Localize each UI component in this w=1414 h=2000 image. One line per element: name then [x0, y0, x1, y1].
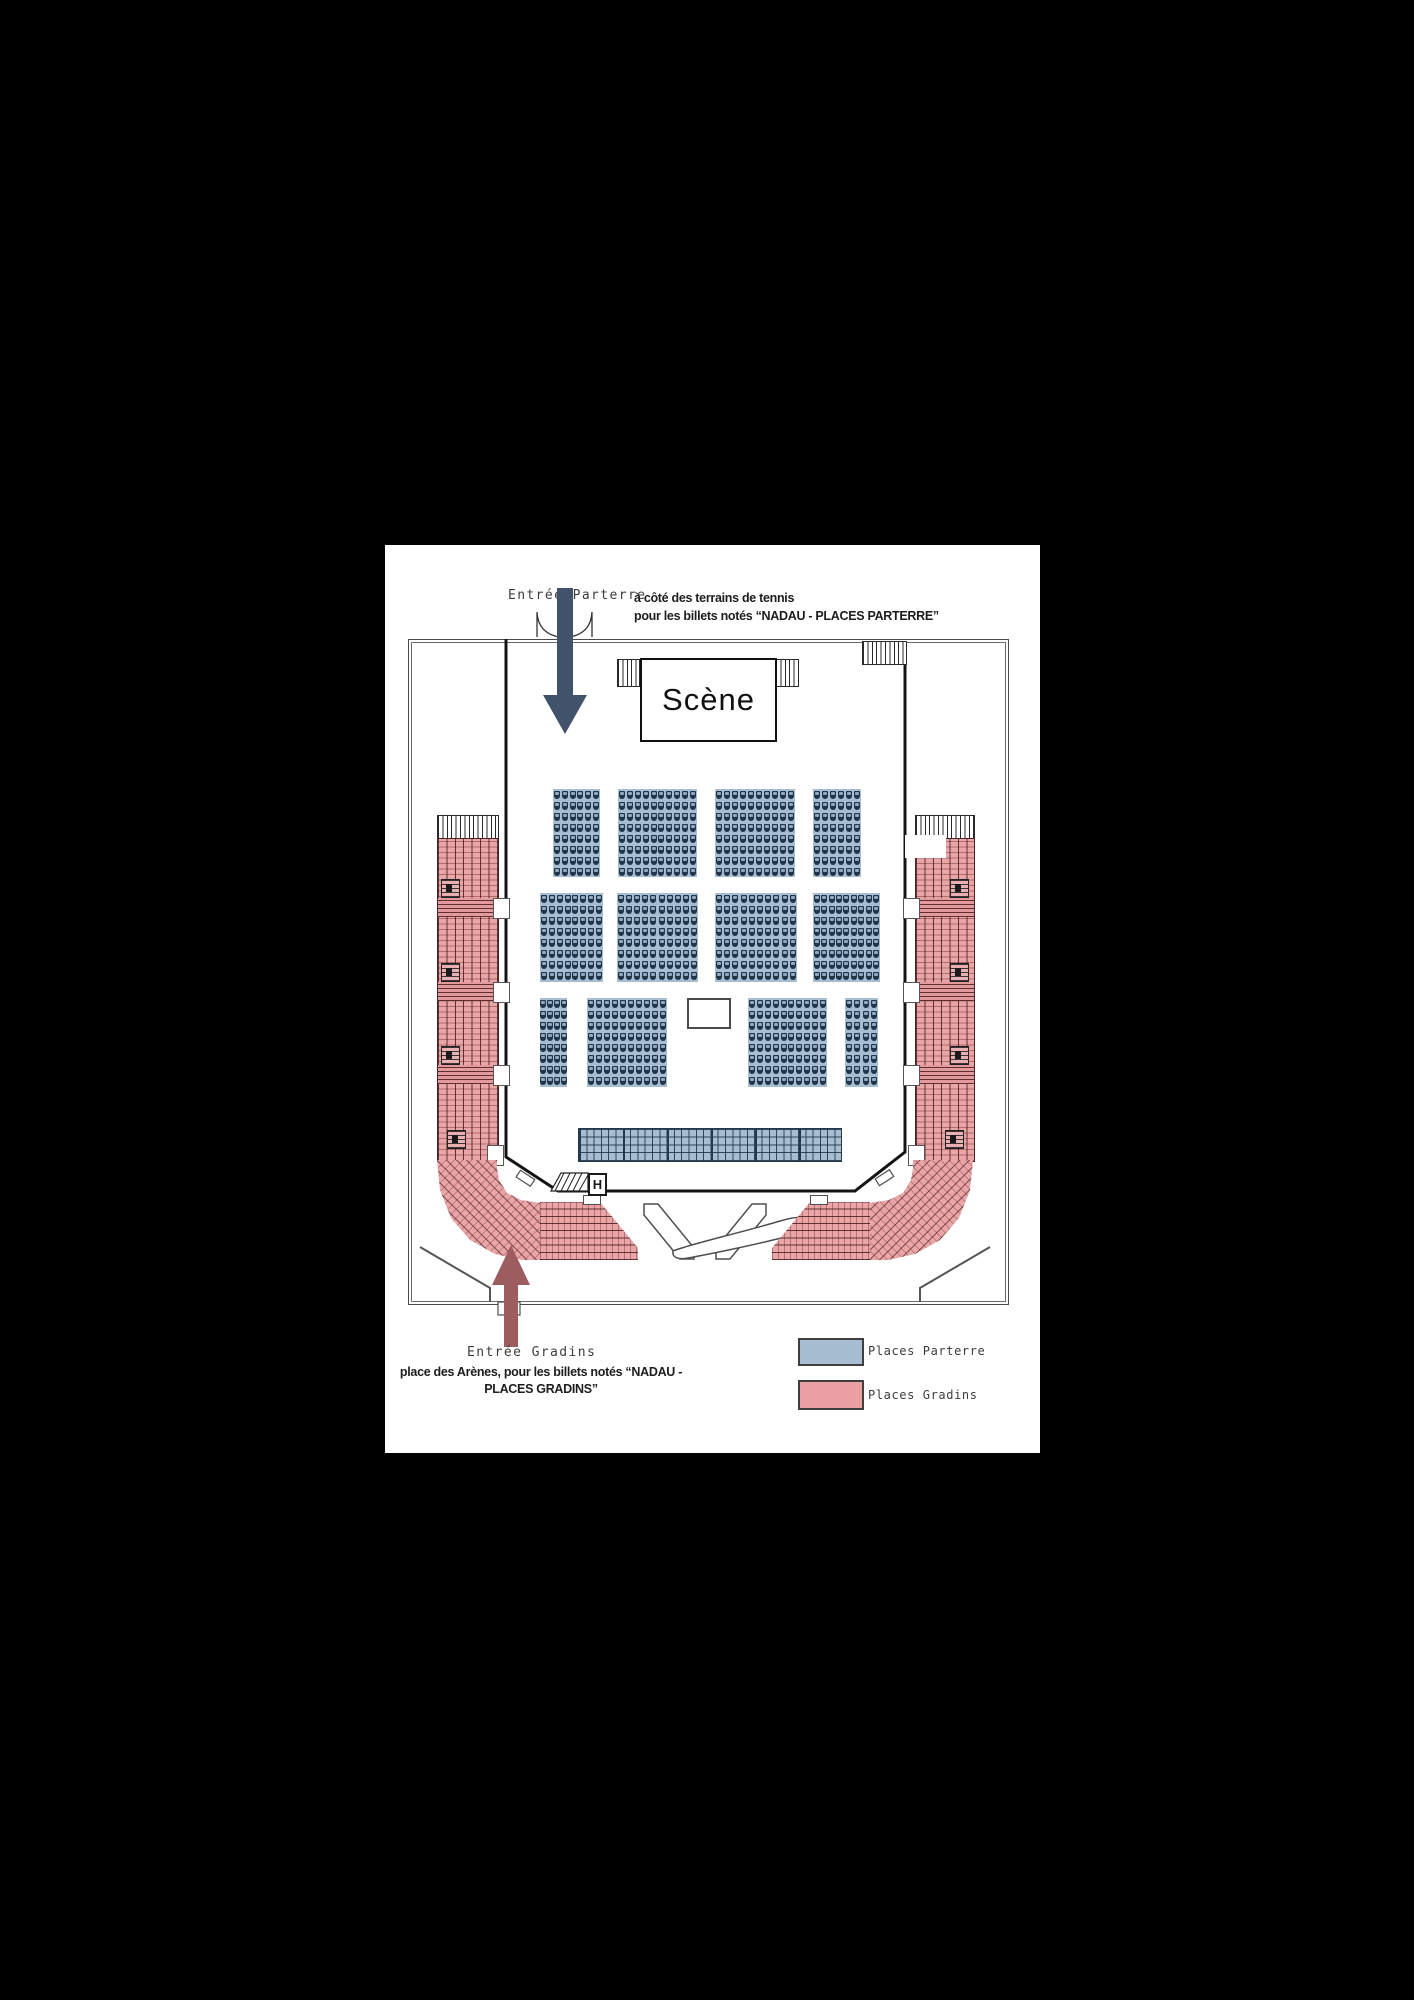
seat [651, 868, 657, 876]
seat [804, 1033, 810, 1041]
seat [650, 906, 656, 914]
seat [765, 906, 771, 914]
seat [780, 846, 786, 854]
gradins-entrance-arrow-head [492, 1245, 530, 1285]
parterre-block-r3-right [845, 998, 878, 1087]
seat [667, 917, 673, 925]
outer-corner-diagonal-left [420, 1247, 490, 1302]
seat [732, 835, 738, 843]
seat [772, 868, 778, 876]
seat [577, 813, 583, 821]
seat [843, 961, 849, 969]
seat [660, 1077, 666, 1085]
seat [562, 813, 568, 821]
seat [790, 917, 796, 925]
seat [554, 1022, 560, 1030]
seat [604, 1055, 610, 1063]
seat [690, 791, 696, 799]
seat [691, 917, 697, 925]
seat [626, 895, 632, 903]
seat [643, 824, 649, 832]
seat [620, 1022, 626, 1030]
seat [854, 835, 860, 843]
seat [873, 917, 879, 925]
seat [674, 824, 680, 832]
seat [804, 1066, 810, 1074]
seat [764, 813, 770, 821]
seat [732, 791, 738, 799]
seat [547, 1011, 553, 1019]
seat [863, 1055, 869, 1063]
seat [854, 1022, 860, 1030]
seat [716, 813, 722, 821]
seat [741, 972, 747, 980]
seat [683, 895, 689, 903]
seat [570, 813, 576, 821]
seat [724, 824, 730, 832]
seat [854, 868, 860, 876]
seating-plan-page: Entrée Parterre à côté des terrains de t… [385, 545, 1040, 1453]
seat [626, 972, 632, 980]
seat [863, 1033, 869, 1041]
seat [620, 1044, 626, 1052]
seat [650, 928, 656, 936]
seat [691, 961, 697, 969]
seat [557, 917, 563, 925]
seat [836, 972, 842, 980]
seat [748, 835, 754, 843]
seat [596, 1055, 602, 1063]
seat [577, 868, 583, 876]
seat [634, 939, 640, 947]
seat [549, 895, 555, 903]
seat [814, 906, 820, 914]
seat [541, 972, 547, 980]
seat [873, 895, 879, 903]
seat [773, 972, 779, 980]
seat [846, 868, 852, 876]
vomitory-right-3 [903, 1065, 920, 1086]
seat [854, 857, 860, 865]
seat [765, 1055, 771, 1063]
seat [732, 950, 738, 958]
seat [658, 802, 664, 810]
seat [732, 857, 738, 865]
seat [741, 906, 747, 914]
seat [659, 939, 665, 947]
vomitory-right-1 [903, 898, 920, 919]
seat [748, 868, 754, 876]
seat [741, 950, 747, 958]
seat [724, 857, 730, 865]
seat [626, 950, 632, 958]
seat [540, 1022, 546, 1030]
parterre-entrance-arrow-shaft [557, 588, 573, 696]
seat [585, 868, 591, 876]
seat [772, 824, 778, 832]
seat [651, 824, 657, 832]
seat [804, 1055, 810, 1063]
seat [796, 1055, 802, 1063]
seat [820, 1066, 826, 1074]
seat [814, 928, 820, 936]
seat [667, 972, 673, 980]
seat [773, 1055, 779, 1063]
seat [854, 1077, 860, 1085]
seat [749, 950, 755, 958]
seat [554, 1077, 560, 1085]
seat [764, 857, 770, 865]
seat [635, 868, 641, 876]
seat [765, 1000, 771, 1008]
seat [871, 1055, 877, 1063]
seat [666, 857, 672, 865]
seat [716, 802, 722, 810]
seat [618, 961, 624, 969]
seat [683, 939, 689, 947]
seat [788, 1011, 794, 1019]
seat [593, 835, 599, 843]
seat [627, 813, 633, 821]
seat [596, 1000, 602, 1008]
seat [593, 824, 599, 832]
seat [577, 824, 583, 832]
seat [643, 813, 649, 821]
seat [796, 1022, 802, 1030]
legend-swatch-parterre [798, 1338, 864, 1366]
seat [814, 868, 820, 876]
seat [790, 972, 796, 980]
seat [846, 824, 852, 832]
seat [780, 791, 786, 799]
seat [627, 802, 633, 810]
bank-stair-icon-r4 [945, 1130, 964, 1149]
seat [796, 1000, 802, 1008]
seat [585, 802, 591, 810]
seat [628, 1044, 634, 1052]
seat [651, 791, 657, 799]
seat [593, 846, 599, 854]
seat [724, 868, 730, 876]
seat [716, 906, 722, 914]
seat [796, 1066, 802, 1074]
seat [773, 1022, 779, 1030]
bank-stair-icon-r2 [950, 963, 969, 982]
seat [814, 813, 820, 821]
seat [652, 1066, 658, 1074]
seat [540, 1055, 546, 1063]
seat [796, 1077, 802, 1085]
seat [596, 1033, 602, 1041]
seat [549, 950, 555, 958]
seat [561, 1077, 567, 1085]
bank-stair-icon-l3 [441, 1046, 460, 1065]
seat [846, 1077, 852, 1085]
seat [650, 917, 656, 925]
seat [541, 906, 547, 914]
seat [675, 972, 681, 980]
bank-stair-icon-l1 [441, 879, 460, 898]
seat [814, 939, 820, 947]
seat [604, 1022, 610, 1030]
bank-left-break-2 [437, 982, 499, 1001]
stage-stairs-right [775, 659, 799, 687]
seat [724, 791, 730, 799]
seat [636, 1011, 642, 1019]
seat [749, 961, 755, 969]
seat [618, 917, 624, 925]
seat [838, 824, 844, 832]
seat [724, 917, 730, 925]
seat [593, 813, 599, 821]
seat [830, 802, 836, 810]
seat [580, 906, 586, 914]
seat [829, 895, 835, 903]
stage-stairs-left [617, 659, 640, 687]
seat [627, 868, 633, 876]
seat [780, 857, 786, 865]
seat [838, 846, 844, 854]
seat [830, 824, 836, 832]
seat [781, 1055, 787, 1063]
seat [780, 835, 786, 843]
seat [854, 802, 860, 810]
entrance-gradins-desc-1: place des Arènes, pour les billets notés… [391, 1365, 691, 1379]
seat [634, 972, 640, 980]
seat [650, 950, 656, 958]
seat [620, 1000, 626, 1008]
seat [604, 1033, 610, 1041]
parterre-block-r2-centerright [715, 893, 797, 982]
seat [612, 1011, 618, 1019]
seat [851, 961, 857, 969]
seat [873, 906, 879, 914]
seat [866, 906, 872, 914]
seat [549, 906, 555, 914]
gradins-stairs-left-top [437, 815, 499, 840]
seat [765, 972, 771, 980]
seat [764, 802, 770, 810]
seat [618, 906, 624, 914]
seat [782, 961, 788, 969]
seat [651, 835, 657, 843]
seat [593, 802, 599, 810]
seat [822, 868, 828, 876]
seat [796, 1033, 802, 1041]
bottom-wall-door-block: H [588, 1173, 607, 1196]
seat [691, 972, 697, 980]
seat [851, 895, 857, 903]
seat [820, 1011, 826, 1019]
seat [814, 950, 820, 958]
seat [635, 813, 641, 821]
seat [757, 895, 763, 903]
seat [572, 928, 578, 936]
seat [572, 917, 578, 925]
bank-right-break-1 [915, 898, 975, 917]
seat [612, 1033, 618, 1041]
seat [658, 791, 664, 799]
seat [570, 824, 576, 832]
parterre-block-r2-right [813, 893, 880, 982]
seat [740, 835, 746, 843]
seat [627, 835, 633, 843]
seat [650, 939, 656, 947]
vomitory-left-1 [493, 898, 510, 919]
seat [780, 868, 786, 876]
seat [682, 791, 688, 799]
seat [788, 1022, 794, 1030]
seat [572, 972, 578, 980]
bank-left-break-1 [437, 898, 499, 917]
seat [565, 961, 571, 969]
seat [644, 1077, 650, 1085]
seat [716, 939, 722, 947]
seat [541, 917, 547, 925]
seat [846, 835, 852, 843]
seat [846, 1055, 852, 1063]
seat [636, 1077, 642, 1085]
seat [627, 791, 633, 799]
seat [814, 917, 820, 925]
seat [675, 939, 681, 947]
seat [756, 802, 762, 810]
seat [830, 791, 836, 799]
seat [854, 1055, 860, 1063]
seat [788, 1044, 794, 1052]
seat [814, 961, 820, 969]
seat [830, 868, 836, 876]
seat [667, 928, 673, 936]
seat [821, 906, 827, 914]
seat [740, 846, 746, 854]
seat [682, 846, 688, 854]
seat [588, 895, 594, 903]
parterre-block-r1-centerright [715, 789, 795, 877]
seat [796, 1044, 802, 1052]
seat [829, 972, 835, 980]
seat [634, 906, 640, 914]
seat [642, 961, 648, 969]
seat [554, 1044, 560, 1052]
seat [782, 939, 788, 947]
seat [740, 824, 746, 832]
seat [683, 972, 689, 980]
seat [674, 835, 680, 843]
seat [549, 972, 555, 980]
seat [652, 1000, 658, 1008]
seat [854, 846, 860, 854]
gate-tab-right [810, 1195, 828, 1205]
seat [788, 1077, 794, 1085]
seat [618, 950, 624, 958]
seat [836, 917, 842, 925]
seat [732, 813, 738, 821]
seat [547, 1055, 553, 1063]
seat [561, 1022, 567, 1030]
seat [554, 791, 560, 799]
seat [588, 917, 594, 925]
seat [756, 857, 762, 865]
parterre-entrance-arrow-head [543, 695, 587, 734]
seat [822, 846, 828, 854]
seat [756, 824, 762, 832]
seat [570, 868, 576, 876]
seat [650, 895, 656, 903]
seat [643, 791, 649, 799]
seat [838, 857, 844, 865]
seat [667, 895, 673, 903]
seat [628, 1066, 634, 1074]
seat [554, 824, 560, 832]
seat [690, 857, 696, 865]
seat [821, 972, 827, 980]
seat [628, 1011, 634, 1019]
seat [732, 895, 738, 903]
seat [644, 1011, 650, 1019]
seat [652, 1055, 658, 1063]
seat [666, 824, 672, 832]
seat [577, 791, 583, 799]
seat [604, 1066, 610, 1074]
seat [846, 857, 852, 865]
seat [604, 1044, 610, 1052]
seat [846, 791, 852, 799]
seat [674, 802, 680, 810]
seat [788, 1000, 794, 1008]
seat [636, 1022, 642, 1030]
seat [652, 1077, 658, 1085]
gradins-entrance-arrow-shaft [504, 1284, 518, 1347]
seat [846, 1044, 852, 1052]
seat [596, 961, 602, 969]
seat [561, 1066, 567, 1074]
bank-stair-icon-r3 [950, 1046, 969, 1065]
seat [572, 950, 578, 958]
seat [740, 791, 746, 799]
seat [635, 802, 641, 810]
seat [620, 1055, 626, 1063]
seat [635, 857, 641, 865]
seat [732, 917, 738, 925]
seat [540, 1044, 546, 1052]
seat [871, 1044, 877, 1052]
seat [846, 1022, 852, 1030]
seat [580, 917, 586, 925]
seat [871, 1066, 877, 1074]
seat [749, 1000, 755, 1008]
seat [675, 950, 681, 958]
seat [628, 1077, 634, 1085]
seat [854, 791, 860, 799]
seat [765, 1011, 771, 1019]
seat [814, 846, 820, 854]
seat [691, 895, 697, 903]
seat [626, 939, 632, 947]
seat [822, 857, 828, 865]
seat [871, 1000, 877, 1008]
seat [732, 802, 738, 810]
seat [871, 1033, 877, 1041]
seat [854, 813, 860, 821]
standing-rows-block [578, 1128, 842, 1162]
seat [716, 791, 722, 799]
seat [724, 835, 730, 843]
seat [554, 813, 560, 821]
seat [549, 917, 555, 925]
seat [541, 928, 547, 936]
seat [540, 1066, 546, 1074]
